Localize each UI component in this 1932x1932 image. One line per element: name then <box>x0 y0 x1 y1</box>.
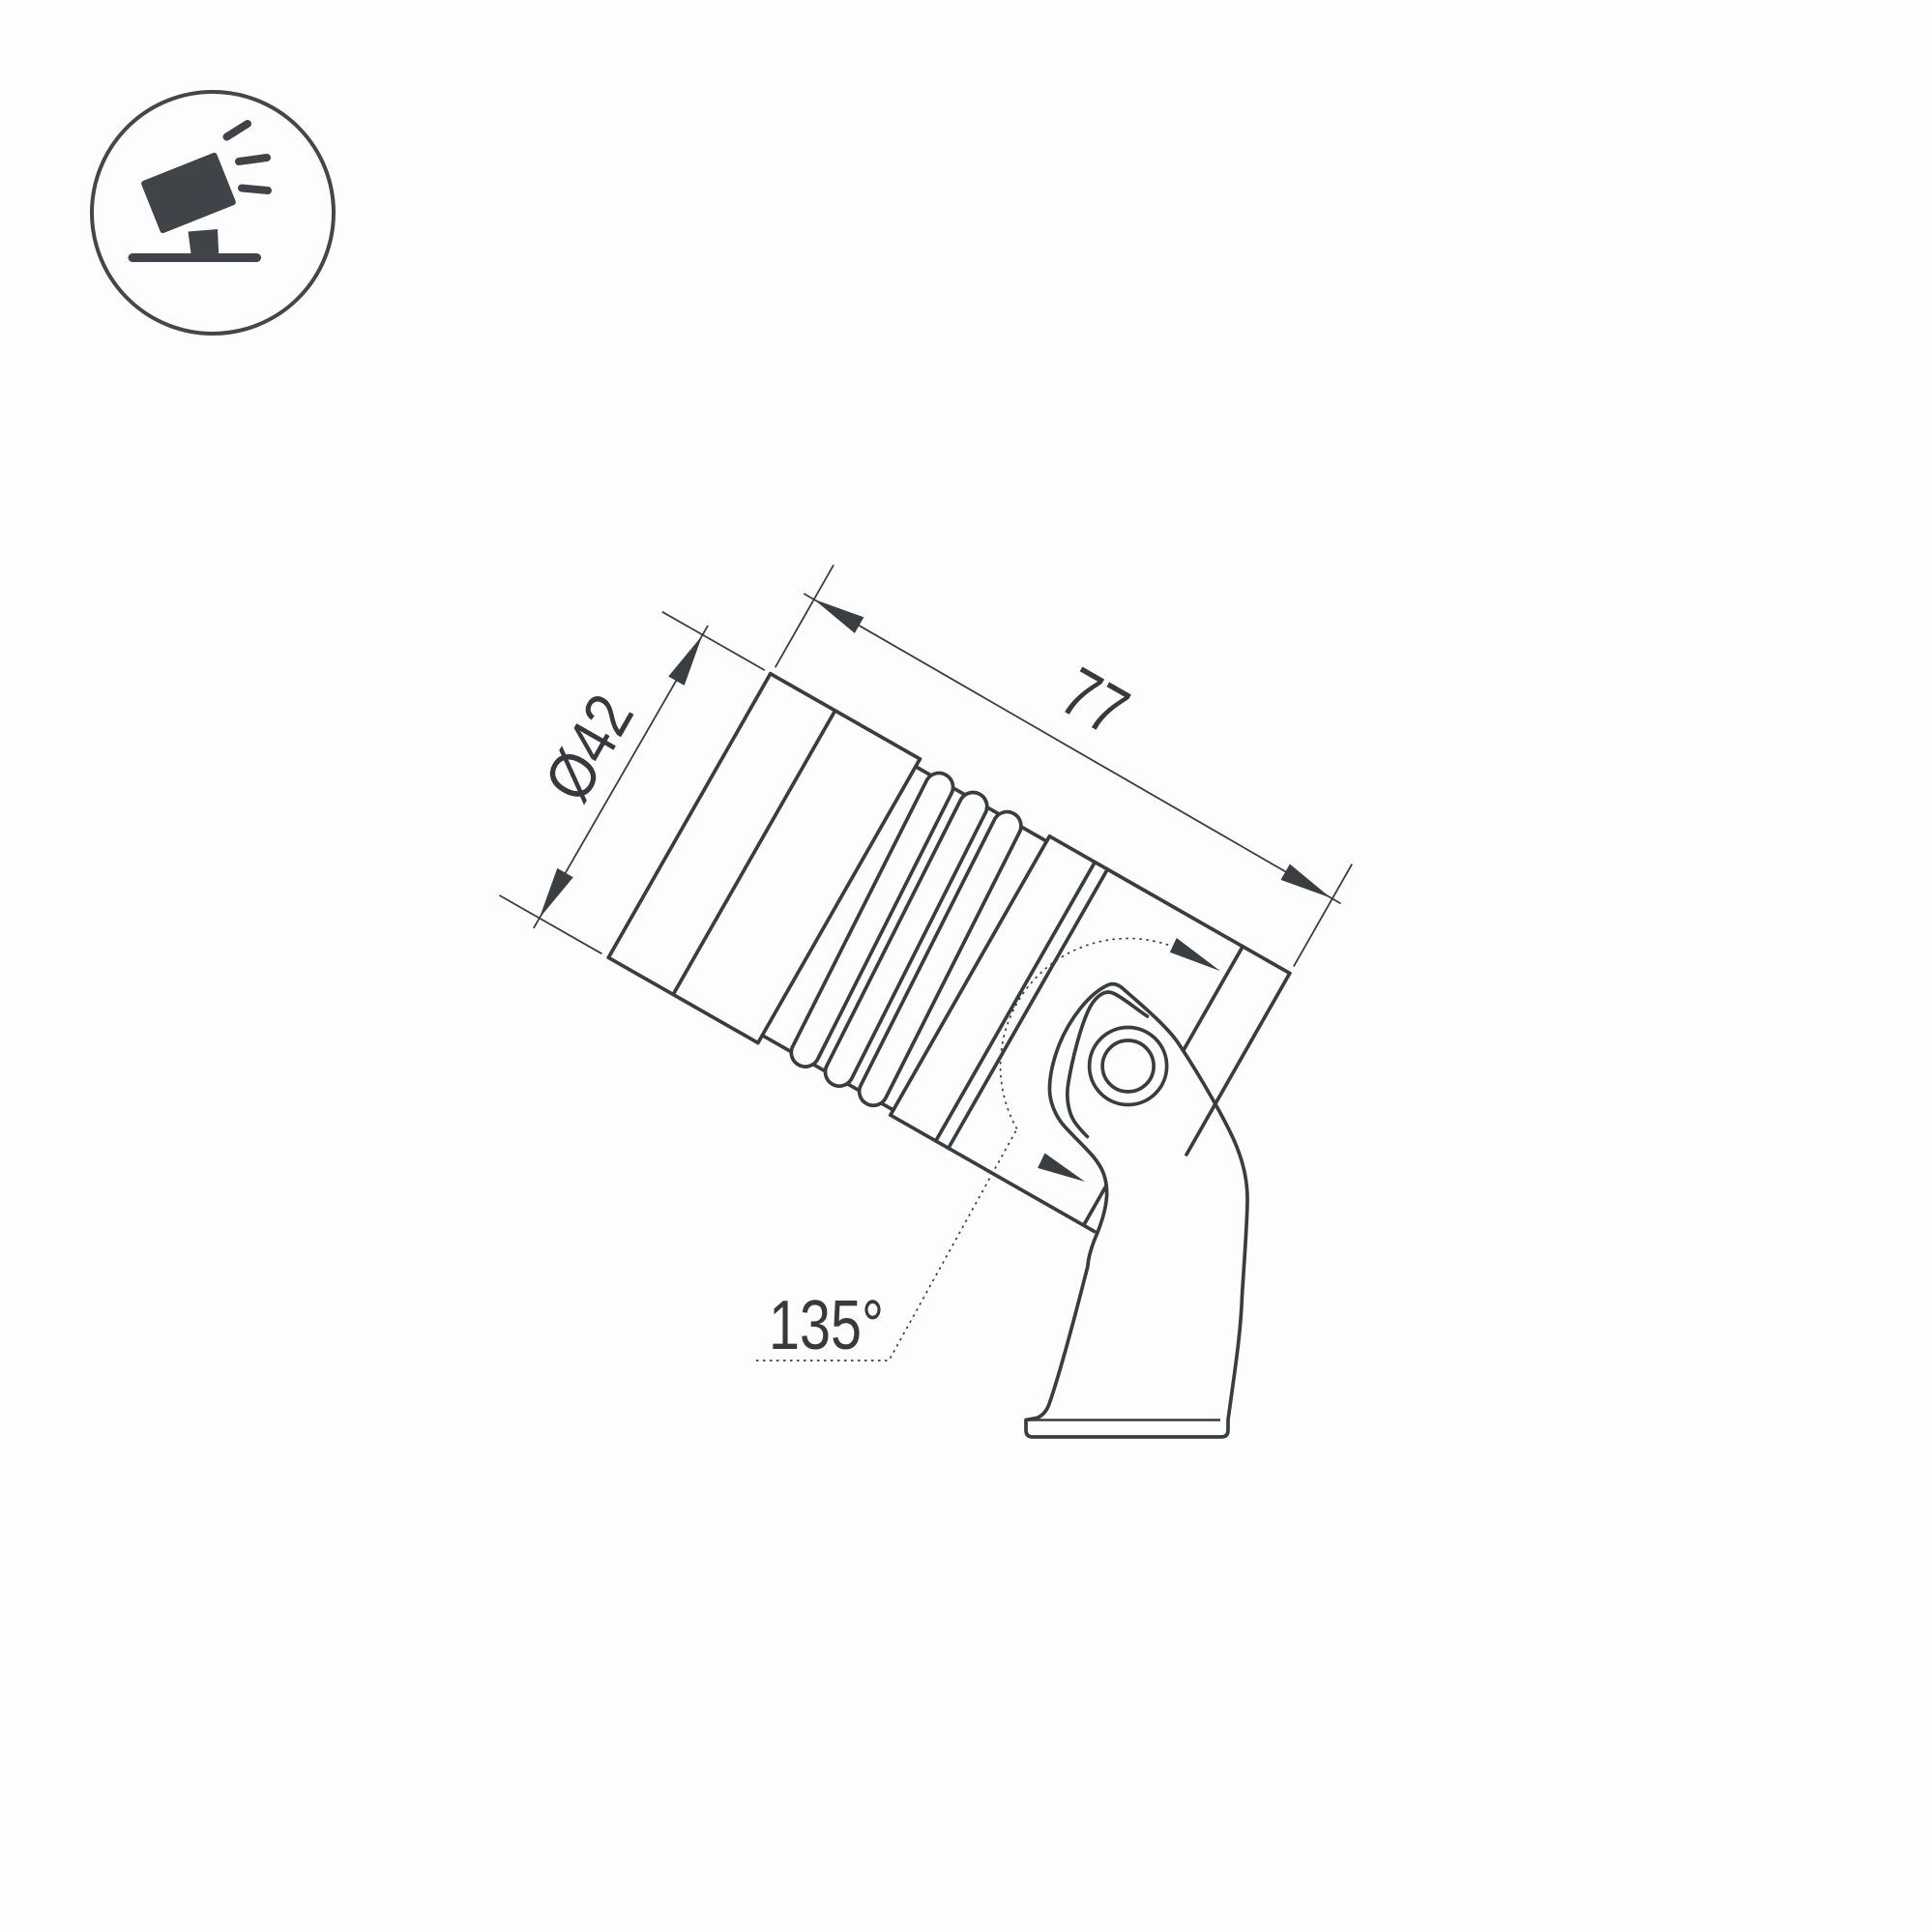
svg-text:135°: 135° <box>769 1287 884 1364</box>
